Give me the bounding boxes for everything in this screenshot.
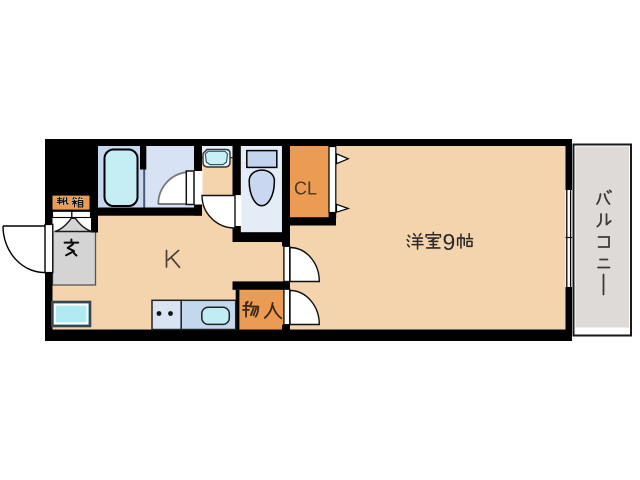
- svg-text:CL: CL: [294, 179, 317, 199]
- svg-text:9: 9: [443, 229, 456, 255]
